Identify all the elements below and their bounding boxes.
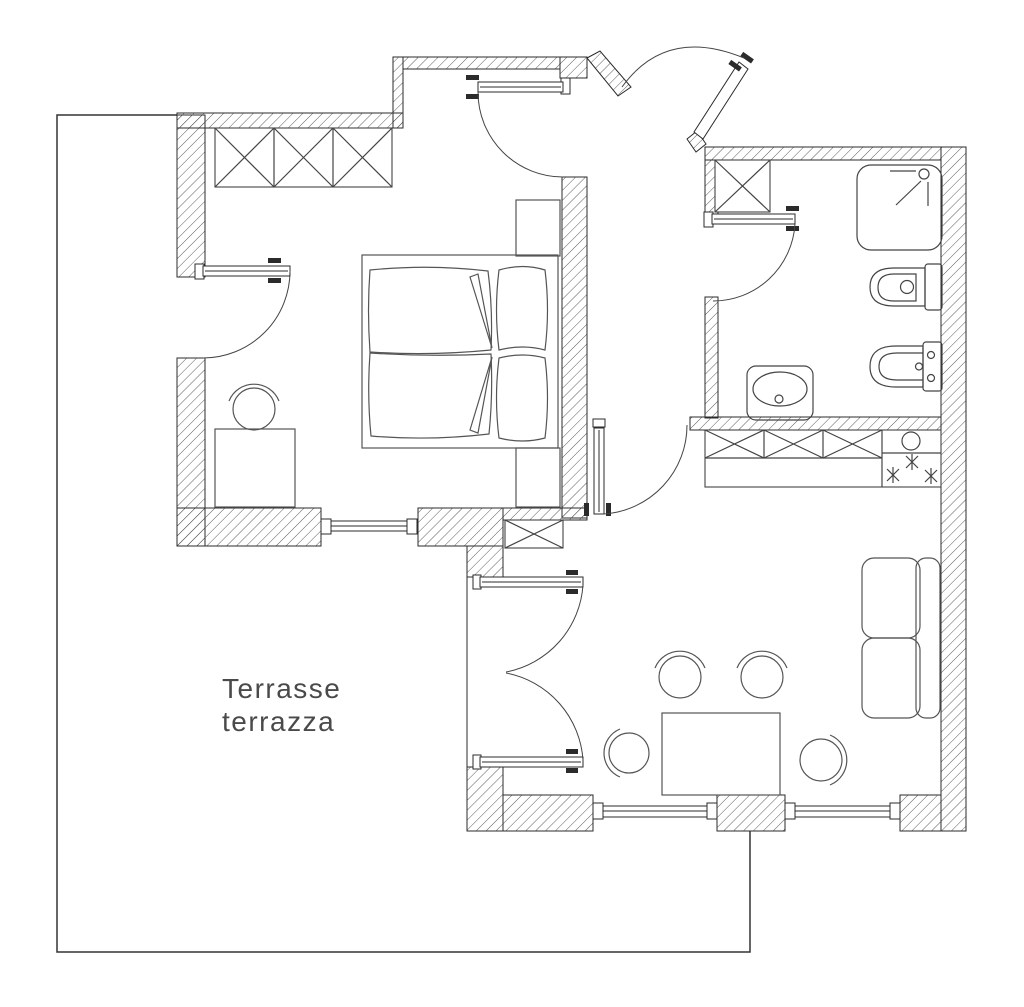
toilet xyxy=(870,264,942,310)
shower xyxy=(857,165,942,250)
bedroom-window xyxy=(321,519,417,534)
wall-segment xyxy=(690,417,941,430)
floor-plan: Terrasse terrazza xyxy=(0,0,1024,1007)
wall-segment xyxy=(467,767,503,831)
bathroom-door xyxy=(704,206,799,301)
living-room-furniture xyxy=(604,558,940,795)
bedroom-furniture xyxy=(215,128,560,507)
wall-segment xyxy=(177,113,403,128)
wall-segment xyxy=(393,57,403,128)
wall-segment xyxy=(562,177,587,518)
wall-segment xyxy=(705,297,718,418)
living-window-left xyxy=(593,803,717,819)
wall-segment xyxy=(717,795,785,831)
dining-chair xyxy=(604,729,649,777)
bidet xyxy=(870,342,942,391)
wall-segment xyxy=(503,795,593,831)
french-door-bottom-leaf xyxy=(473,673,583,773)
nightstand-top xyxy=(516,200,560,256)
entry-door xyxy=(622,47,754,139)
wardrobe xyxy=(215,128,392,187)
terrace-label-line1: Terrasse xyxy=(222,673,341,704)
french-door-top-leaf xyxy=(473,570,583,672)
double-bed xyxy=(362,255,558,448)
wall-segment xyxy=(403,57,560,69)
terrace-outline xyxy=(57,115,750,952)
wall-segment xyxy=(900,795,941,831)
wall-segment xyxy=(467,546,503,577)
hall-door xyxy=(584,419,687,516)
desk xyxy=(215,429,295,507)
windows xyxy=(321,519,900,819)
dining-table xyxy=(662,713,780,795)
wall-segment xyxy=(177,115,205,277)
dining-chair xyxy=(737,651,787,698)
dining-chair xyxy=(655,651,705,698)
washbasin xyxy=(747,366,813,420)
wall-segment xyxy=(941,147,966,831)
dining-chair xyxy=(800,735,847,785)
sofa xyxy=(862,558,940,718)
bedroom-door xyxy=(466,75,570,177)
terrace-label-line2: terrazza xyxy=(222,706,335,737)
terrace-label: Terrasse terrazza xyxy=(222,673,341,737)
living-window-right xyxy=(785,803,900,819)
angled-wall-segment xyxy=(587,51,631,96)
bathroom-closet xyxy=(715,160,770,212)
terrace-door xyxy=(195,258,290,358)
desk-chair xyxy=(229,384,279,430)
wall-closet xyxy=(505,520,563,548)
kitchen-counter xyxy=(705,430,941,487)
wall-segment xyxy=(560,57,587,78)
wall-segment xyxy=(418,508,503,546)
wall-segment xyxy=(705,147,941,160)
wall-segment xyxy=(177,508,321,546)
nightstand-bottom xyxy=(516,448,560,507)
wall-segment xyxy=(503,508,587,520)
floor-plan-drawing: Terrasse terrazza xyxy=(0,0,1024,1007)
bathroom-fixtures xyxy=(715,160,942,420)
